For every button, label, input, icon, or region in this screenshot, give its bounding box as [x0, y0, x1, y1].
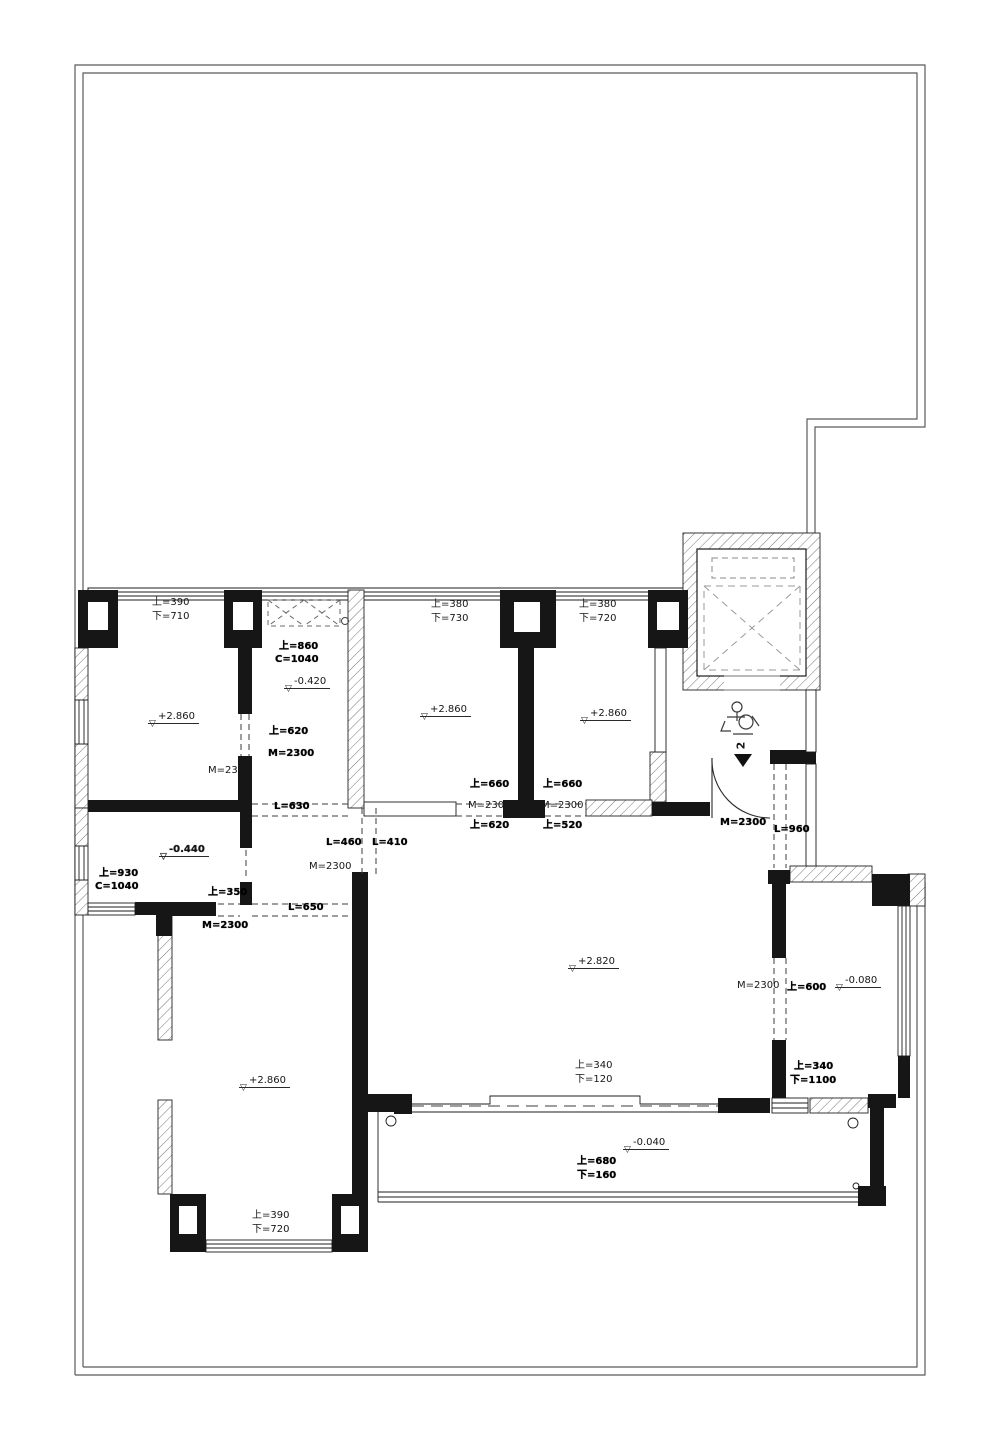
top-window-band: [88, 588, 685, 600]
site-boundary: [75, 65, 925, 1375]
floor-plan-linework: [0, 0, 1000, 1440]
drain-circle: [342, 618, 349, 625]
elevator-shaft: [697, 549, 806, 692]
floor-plan: 上=390下=710上=380下=730上=380下=720上=860C=104…: [0, 0, 1000, 1440]
person-symbol: [721, 702, 759, 734]
section-mark-arrow: [734, 754, 752, 767]
entry-door: [712, 758, 770, 818]
vent-box: [268, 600, 340, 626]
dashed-openings: [218, 714, 786, 1106]
column-insets: [88, 602, 679, 1234]
